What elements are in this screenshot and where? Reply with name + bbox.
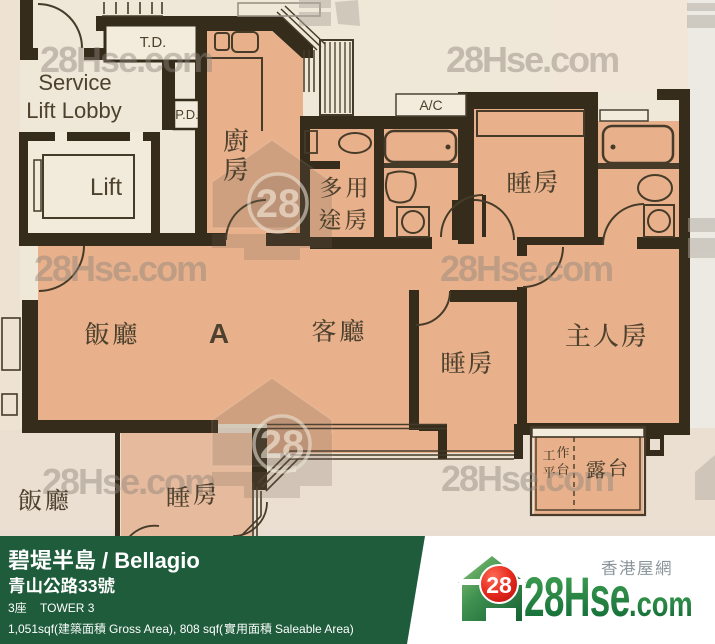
svg-text:P.D.: P.D. bbox=[175, 107, 199, 122]
svg-text:3: 3 bbox=[8, 601, 15, 615]
svg-text:1,051sqf(: 1,051sqf( bbox=[8, 622, 58, 636]
svg-text:28: 28 bbox=[256, 182, 301, 226]
svg-text:33: 33 bbox=[78, 576, 98, 596]
svg-text:28: 28 bbox=[260, 423, 305, 467]
svg-text:Lift: Lift bbox=[90, 174, 122, 201]
svg-text:.com: .com bbox=[629, 585, 693, 624]
svg-text:Saleable Area): Saleable Area) bbox=[275, 622, 354, 636]
svg-text:TOWER 3: TOWER 3 bbox=[40, 601, 95, 615]
svg-text:28Hse.com: 28Hse.com bbox=[34, 248, 206, 289]
svg-text:28Hse.com: 28Hse.com bbox=[40, 39, 212, 80]
svg-text:28Hse: 28Hse bbox=[524, 566, 630, 629]
svg-text:A: A bbox=[209, 318, 229, 349]
svg-text:Gross Area), 808 sqf(: Gross Area), 808 sqf( bbox=[109, 622, 223, 636]
svg-text:Lift Lobby: Lift Lobby bbox=[26, 98, 121, 123]
svg-text:28Hse.com: 28Hse.com bbox=[441, 458, 613, 499]
svg-text:A/C: A/C bbox=[419, 97, 442, 113]
svg-text:28Hse.com: 28Hse.com bbox=[446, 39, 618, 80]
svg-text:28Hse.com: 28Hse.com bbox=[440, 248, 612, 289]
svg-text:28: 28 bbox=[486, 572, 512, 598]
svg-text:/ Bellagio: / Bellagio bbox=[102, 548, 200, 573]
